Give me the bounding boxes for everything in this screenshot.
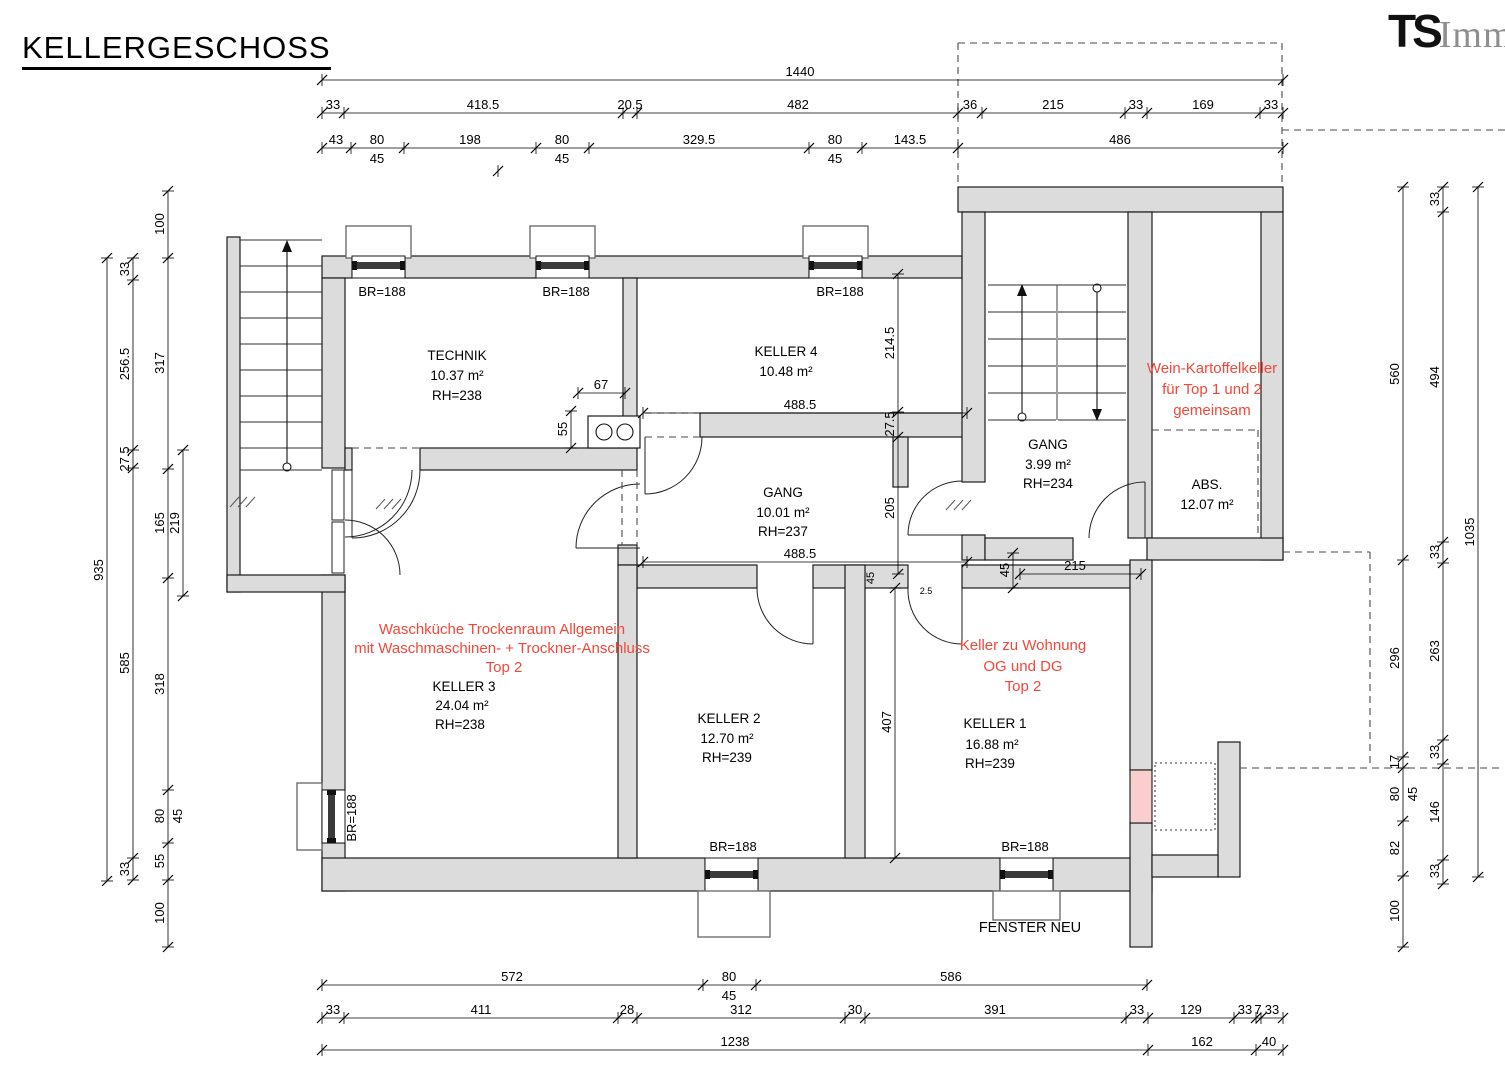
room-abs-area: 12.07 m² [1180,497,1234,512]
svg-text:33: 33 [326,97,340,112]
svg-text:55: 55 [555,422,570,436]
svg-text:28: 28 [620,1002,634,1017]
svg-text:100: 100 [1387,900,1402,922]
room-gang-rh: RH=237 [758,524,808,539]
svg-text:318: 318 [152,673,167,695]
sink-fixture [588,416,640,448]
svg-text:43: 43 [329,132,343,147]
window-keller3 [297,783,345,850]
window-technik-left [346,226,411,278]
window-technik-right [530,226,595,278]
door-gang-stiegenhaus-left [908,481,962,535]
svg-text:45: 45 [865,572,877,584]
room-keller4-name: KELLER 4 [754,344,818,359]
wein-annotation-line3: gemeinsam [1173,402,1251,419]
svg-text:33: 33 [1129,97,1143,112]
svg-text:312: 312 [730,1002,752,1017]
svg-text:560: 560 [1387,363,1402,385]
keller3-annotation-line2: mit Waschmaschinen- + Trockner-Anschluss [354,640,650,657]
exterior-stair [240,240,322,471]
walls [227,187,1283,947]
door-keller4 [645,437,702,494]
room-gang-area: 10.01 m² [756,505,810,520]
svg-text:45: 45 [1405,787,1420,801]
interior-stair [988,284,1126,421]
keller1-annotation-line3: Top 2 [1005,678,1042,695]
room-keller2-area: 12.70 m² [700,731,754,746]
svg-text:418.5: 418.5 [467,97,500,112]
svg-text:45: 45 [828,151,842,166]
svg-text:169: 169 [1192,97,1214,112]
wein-annotation-line1: Wein-Kartoffelkeller [1147,360,1277,377]
window-fenster-neu-pink [1130,763,1215,830]
room-keller1-rh: RH=239 [965,756,1015,771]
room-keller1-name: KELLER 1 [963,716,1026,731]
svg-text:407: 407 [879,711,894,733]
room-gang2-area: 3.99 m² [1025,457,1071,472]
room-keller3-area: 24.04 m² [435,698,489,713]
svg-text:263: 263 [1427,640,1442,662]
br188-window-label-5: BR=188 [1001,839,1048,854]
svg-text:33: 33 [1427,545,1442,559]
svg-text:33: 33 [1238,1002,1252,1017]
keller3-annotation-line3: Top 2 [486,659,523,676]
door-keller1 [908,588,962,644]
window-keller1-new [993,858,1060,920]
svg-text:100: 100 [152,213,167,235]
svg-text:215: 215 [1064,558,1086,573]
svg-text:1238: 1238 [721,1034,750,1049]
room-keller1-area: 16.88 m² [965,737,1019,752]
room-technik-area: 10.37 m² [430,368,484,383]
room-gang2-rh: RH=234 [1023,476,1073,491]
svg-text:1440: 1440 [786,64,815,79]
svg-text:33: 33 [1427,745,1442,759]
svg-text:67: 67 [594,377,608,392]
svg-text:198: 198 [459,132,481,147]
room-technik-rh: RH=238 [432,388,482,403]
svg-text:488.5: 488.5 [784,546,817,561]
room-keller3-rh: RH=238 [435,717,485,732]
svg-text:329.5: 329.5 [683,132,716,147]
svg-text:935: 935 [91,559,106,581]
svg-text:40: 40 [1262,1034,1276,1049]
svg-text:391: 391 [984,1002,1006,1017]
svg-text:30: 30 [848,1002,862,1017]
svg-text:129: 129 [1180,1002,1202,1017]
svg-text:80: 80 [370,132,384,147]
svg-text:411: 411 [471,1002,492,1017]
svg-text:45: 45 [370,151,384,166]
svg-text:33: 33 [1130,1002,1144,1017]
svg-text:45: 45 [170,809,185,823]
svg-text:256.5: 256.5 [117,348,132,381]
svg-text:482: 482 [787,97,809,112]
svg-text:27.5: 27.5 [117,446,132,471]
door-keller2 [757,588,813,644]
br188-window-label-3: BR=188 [816,284,863,299]
svg-text:33: 33 [1427,864,1442,878]
floorplan-canvas: KELLERGESCHOSS TSImmo [0,0,1505,1080]
svg-text:80: 80 [152,809,167,823]
svg-text:317: 317 [152,352,167,374]
door-stair-entry [332,470,412,575]
room-abs-name: ABS. [1192,477,1223,492]
svg-text:296: 296 [1387,647,1402,669]
fenster-neu-label: FENSTER NEU [979,920,1081,936]
keller1-annotation-line1: Keller zu Wohnung [960,637,1086,654]
svg-text:486: 486 [1109,132,1131,147]
svg-text:80: 80 [555,132,569,147]
svg-text:36: 36 [963,97,977,112]
svg-text:7: 7 [1254,1002,1261,1017]
svg-text:45: 45 [722,988,736,1003]
svg-text:80: 80 [828,132,842,147]
svg-text:20.5: 20.5 [617,97,642,112]
wein-annotation-line2: für Top 1 und 2 [1162,381,1262,398]
svg-text:100: 100 [152,902,167,924]
svg-text:45: 45 [555,151,569,166]
svg-text:45: 45 [997,563,1012,577]
svg-text:80: 80 [722,969,736,984]
keller1-annotation-line2: OG und DG [983,658,1062,675]
floorplan-drawing: 144033418.520.54823621533169334380451988… [0,0,1505,1080]
window-keller4 [803,226,868,278]
svg-text:2.5: 2.5 [920,586,933,596]
svg-text:80: 80 [1387,787,1402,801]
svg-text:165: 165 [152,512,167,534]
svg-text:33: 33 [1264,97,1278,112]
br188-window-label-1: BR=188 [358,284,405,299]
keller3-annotation-line1: Waschküche Trockenraum Allgemein [379,621,625,638]
br188-window-label-6: BR=188 [344,794,359,841]
svg-text:585: 585 [117,652,132,674]
svg-text:27.5: 27.5 [882,411,897,436]
svg-text:572: 572 [501,969,523,984]
svg-text:494: 494 [1427,366,1442,388]
svg-text:33: 33 [326,1002,340,1017]
svg-text:17: 17 [1387,755,1402,769]
room-keller4-area: 10.48 m² [759,364,813,379]
svg-text:219: 219 [167,512,182,534]
svg-text:82: 82 [1387,841,1402,855]
svg-text:143.5: 143.5 [894,132,927,147]
door-keller3 [576,484,640,548]
svg-text:33: 33 [1265,1002,1279,1017]
door-technik [352,470,420,538]
br188-window-label-4: BR=188 [709,839,756,854]
svg-text:33: 33 [117,262,132,276]
svg-text:33: 33 [1427,192,1442,206]
svg-text:488.5: 488.5 [784,397,817,412]
room-keller3-name: KELLER 3 [432,679,495,694]
svg-text:162: 162 [1191,1034,1213,1049]
dashed-projections [352,43,1505,768]
svg-text:33: 33 [117,862,132,876]
svg-text:1035: 1035 [1462,518,1477,547]
svg-text:146: 146 [1427,801,1442,823]
svg-text:55: 55 [152,854,167,868]
room-keller2-rh: RH=239 [702,750,752,765]
room-keller2-name: KELLER 2 [697,711,760,726]
br188-window-label-2: BR=188 [542,284,589,299]
svg-text:214.5: 214.5 [882,327,897,360]
svg-text:205: 205 [882,497,897,519]
room-gang-name: GANG [763,485,803,500]
room-technik-name: TECHNIK [427,348,486,363]
svg-text:586: 586 [940,969,962,984]
svg-text:215: 215 [1042,97,1064,112]
room-gang2-name: GANG [1028,437,1068,452]
